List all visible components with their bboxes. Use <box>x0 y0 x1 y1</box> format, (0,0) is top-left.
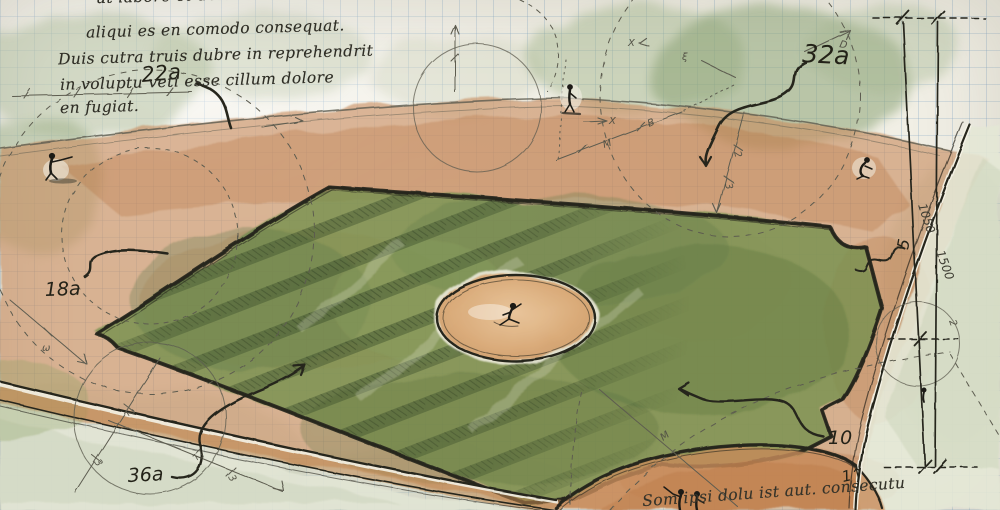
letter-x-1: X <box>608 116 617 127</box>
sketch-canvas: 22a 32a 18a 36a 10 5 1050 1500 1↑ M B X … <box>0 0 1000 510</box>
letter-xi: ξ <box>681 52 688 63</box>
catcher-figure <box>852 157 876 179</box>
letter-x-2: X <box>627 38 636 49</box>
mound-dirt <box>438 276 594 360</box>
pitchers-mound <box>433 272 599 364</box>
handwritten-note-line-4: en fugiat. <box>60 97 140 117</box>
letter-omega: ω <box>42 343 50 354</box>
label-18a: 18a <box>44 278 81 301</box>
label-36a: 36a <box>127 463 164 487</box>
label-10: 10 <box>828 427 852 449</box>
